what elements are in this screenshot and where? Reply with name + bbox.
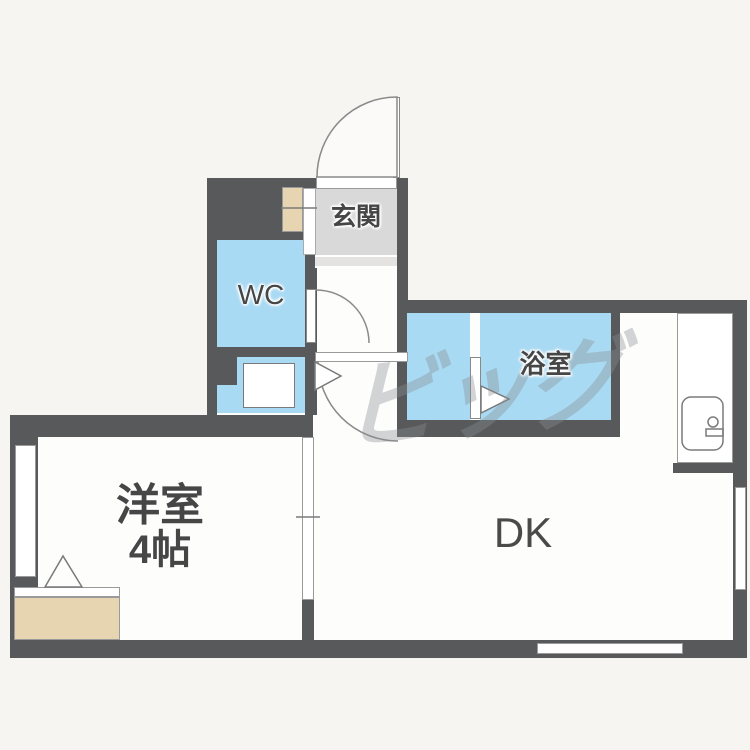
western-room-name: 洋室 [38, 483, 282, 529]
western-room-size: 4帖 [38, 529, 282, 571]
door-symbols-layer [0, 0, 750, 750]
wc-label: WC [217, 280, 305, 309]
entrance-door-arc [317, 97, 397, 177]
kitchen-sink [682, 397, 723, 450]
hall-door-arc [316, 290, 369, 343]
floor-plan: ビッグ 玄関 WC 浴室 洋室 4帖 DK [0, 0, 750, 750]
bath-label: 浴室 [480, 351, 611, 378]
genkan-label: 玄関 [315, 204, 397, 230]
dk-label: DK [433, 511, 613, 555]
folding-door-marker-hall [315, 362, 341, 390]
folding-door-marker-bath [481, 386, 509, 413]
western-room-label: 洋室 4帖 [38, 483, 282, 571]
